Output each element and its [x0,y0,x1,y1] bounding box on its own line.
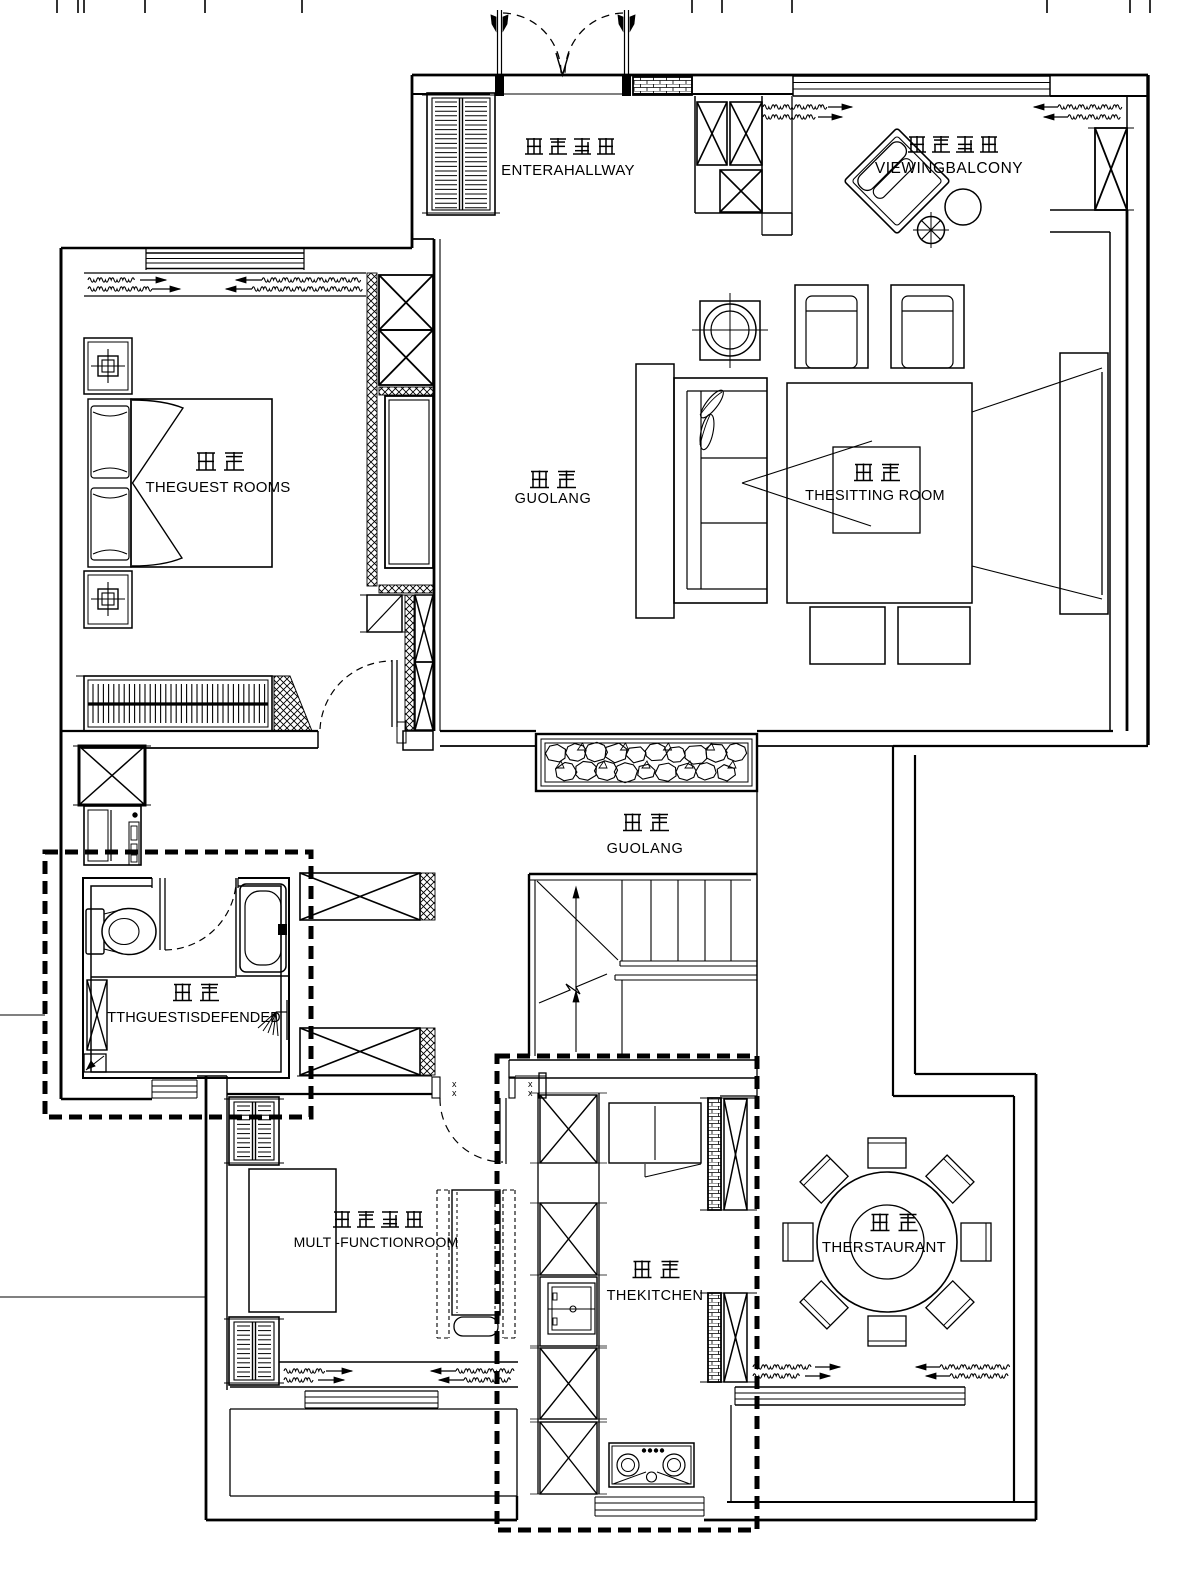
svg-text:MULT -FUNCTIONROOM: MULT -FUNCTIONROOM [294,1234,459,1250]
svg-text:ENTERAHALLWAY: ENTERAHALLWAY [501,162,635,179]
svg-text:GUOLANG: GUOLANG [607,841,684,857]
svg-text:THERSTAURANT: THERSTAURANT [822,1239,946,1256]
svg-text:THESITTING ROOM: THESITTING ROOM [805,488,945,504]
svg-text:x: x [452,1088,457,1098]
svg-text:GUOLANG: GUOLANG [515,491,592,507]
svg-text:THEGUEST ROOMS: THEGUEST ROOMS [145,479,290,496]
svg-text:VIEWINGBALCONY: VIEWINGBALCONY [875,160,1023,177]
svg-text:TTHGUESTISDEFENDED: TTHGUESTISDEFENDED [107,1010,280,1026]
svg-text:THEKITCHEN: THEKITCHEN [607,1288,704,1304]
